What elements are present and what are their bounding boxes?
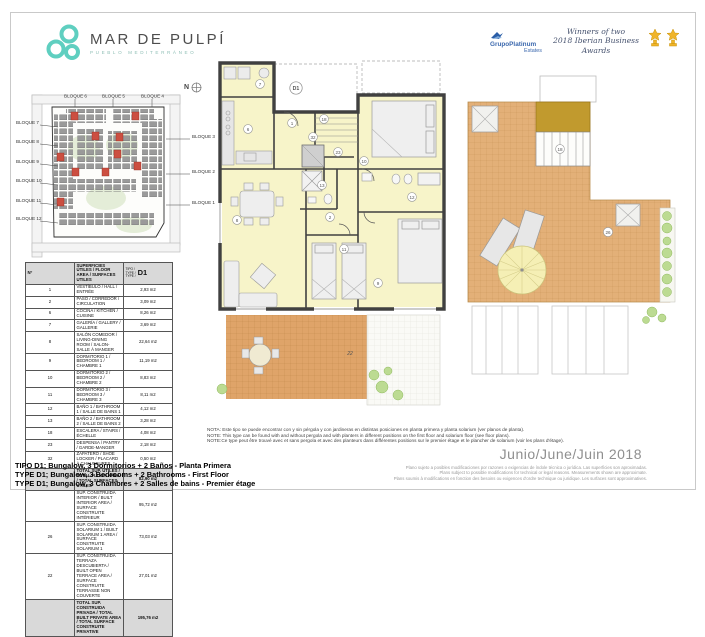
row-description: GALERÍA / GALLERY / GALLERIE — [75, 320, 124, 332]
room-number-dormitorio2: 10 — [361, 159, 367, 164]
north-indicator: N — [184, 82, 202, 93]
room-number-galeria: 7 — [259, 82, 262, 87]
brand-sub: Estates — [490, 48, 542, 54]
row-number: 23 — [26, 440, 75, 452]
disclaimer-fr: Plans soumis à modifications en fonction… — [297, 476, 647, 481]
row-value: 2,18 m2 — [124, 440, 173, 452]
table-row: 11DORMITORIO 3 / BEDROOM 3 / CHAMBRE 38,… — [26, 387, 173, 404]
row-value: 22,64 m2 — [124, 332, 173, 354]
solarium-plan: 26 18 — [456, 70, 694, 435]
notes-block: NOTA: Este tipo se puede encontrar con y… — [207, 427, 652, 444]
row-value: 4,08 m2 — [124, 428, 173, 440]
row-value: 8,11 m2 — [124, 387, 173, 404]
table-row: TOTAL SUP. CONSTRUIDA PRIVADA / TOTAL BU… — [26, 600, 173, 637]
area-table: Nº SUPERFICIES ÚTILES / FLOOR AREA / SUR… — [25, 262, 173, 637]
row-value: 8,26 m2 — [124, 308, 173, 320]
room-number-zapatero: 32 — [310, 135, 316, 140]
row-number: 2 — [26, 296, 75, 308]
type-model-label: D1 — [138, 269, 148, 278]
row-description: BAÑO 1 / BATHROOM 1 / SALLE DE BAINS 1 — [75, 404, 124, 416]
awards-line-1: Winners of two — [548, 27, 644, 36]
row-description: BAÑO 2 / BATHROOM 2 / SALLE DE BAINS 2 — [75, 416, 124, 428]
row-description: SUP. CONSTRUIDA SOLARIUM 1 / BUILT SOLAR… — [75, 522, 124, 554]
unit-label: D1 — [293, 86, 300, 92]
row-number — [26, 600, 75, 637]
trophy-icon — [649, 29, 661, 46]
bloque-label: BLOQUE 4 — [141, 94, 164, 99]
plan-date: Junio/June/Juin 2018 — [400, 446, 642, 462]
bloque-label: BLOQUE 7 — [16, 120, 39, 125]
row-number: 22 — [26, 553, 75, 599]
row-value: 3,28 m2 — [124, 416, 173, 428]
table-row: 10DORMITORIO 2 / BEDROOM 2 / CHAMBRE 28,… — [26, 370, 173, 387]
row-description: SUP. CONSTRUIDA TERRAZA DESCUBIERTA / BU… — [75, 553, 124, 599]
row-number: 11 — [26, 387, 75, 404]
row-description: PASO / CORREDOR / CIRCULATION — [75, 296, 124, 308]
grupo-platinum-logo: GrupoPlatinum Estates — [490, 29, 542, 54]
row-number: 10 — [26, 370, 75, 387]
row-number: 13 — [26, 416, 75, 428]
table-row: 7GALERÍA / GALLERY / GALLERIE3,69 m2 — [26, 320, 173, 332]
row-value: 3,09 m2 — [124, 296, 173, 308]
room-number-terraza: 22 — [346, 351, 353, 357]
row-value: 95,72 m2 — [124, 490, 173, 522]
bloque-label: BLOQUE 6 — [64, 94, 87, 99]
table-header-row: Nº SUPERFICIES ÚTILES / FLOOR AREA / SUR… — [26, 263, 173, 285]
first-floor-plan: D1 1 2 6 7 8 9 10 11 12 13 18 23 32 22 — [212, 57, 462, 430]
row-value: 3,69 m2 — [124, 320, 173, 332]
room-number-cocina: 6 — [247, 127, 250, 132]
table-row: 23DESPENSA / PANTRY / GARDE-MANGER2,18 m… — [26, 440, 173, 452]
trophies — [647, 28, 681, 53]
awards-line-2: 2018 Iberian Business Awards — [548, 36, 644, 55]
row-value: 11,19 m2 — [124, 354, 173, 371]
row-number: 26 — [26, 522, 75, 554]
logo-subtitle: PUEBLO MEDITERRÁNEO — [90, 50, 226, 55]
mar-de-pulpi-logo-icon — [46, 24, 82, 60]
row-description: DESPENSA / PANTRY / GARDE-MANGER — [75, 440, 124, 452]
row-number: 1 — [26, 284, 75, 296]
awards-script: Winners of two 2018 Iberian Business Awa… — [548, 27, 644, 55]
room-number-bano2: 13 — [319, 183, 325, 188]
row-value: 27,01 m2 — [124, 553, 173, 599]
row-value: 2,93 m2 — [124, 284, 173, 296]
row-value: 195,76 m2 — [124, 600, 173, 637]
bloque-label: BLOQUE 8 — [16, 139, 39, 144]
row-value: 8,83 m2 — [124, 370, 173, 387]
type-description: TIPO D1; Bungalow, 3 Dormitorios + 2 Bañ… — [15, 461, 295, 488]
room-number-dormitorio3: 11 — [342, 247, 347, 252]
row-description: DORMITORIO 1 / BEDROOM 1 / CHAMBRE 1 — [75, 354, 124, 371]
room-number-salon: 8 — [236, 218, 239, 223]
bloque-label: BLOQUE 5 — [102, 94, 125, 99]
column-header-type: TIPO / TYPE / TYPE /D1 — [124, 263, 173, 285]
table-row: 2PASO / CORREDOR / CIRCULATION3,09 m2 — [26, 296, 173, 308]
table-row: 22SUP. CONSTRUIDA TERRAZA DESCUBIERTA / … — [26, 553, 173, 599]
row-value: 73,03 m2 — [124, 522, 173, 554]
room-number-solarium: 26 — [605, 230, 611, 235]
room-number-paso: 2 — [329, 215, 332, 220]
row-description: TOTAL SUP. CONSTRUIDA PRIVADA / TOTAL BU… — [75, 600, 124, 637]
north-label: N — [184, 84, 189, 91]
row-number: 18 — [26, 428, 75, 440]
room-number-vestibulo: 1 — [291, 121, 294, 126]
trophy-icon — [667, 29, 679, 46]
room-number-dormitorio1: 9 — [377, 281, 380, 286]
table-row: 1VESTÍBULO / HALL / ENTRÉE2,93 m2 — [26, 284, 173, 296]
row-description: SALÓN COMEDOR / LIVING-DINING ROOM / SAL… — [75, 332, 124, 354]
row-number: 9 — [26, 354, 75, 371]
row-description: DORMITORIO 2 / BEDROOM 2 / CHAMBRE 2 — [75, 370, 124, 387]
column-header-number: Nº — [26, 263, 75, 285]
row-description: VESTÍBULO / HALL / ENTRÉE — [75, 284, 124, 296]
bloque-label: BLOQUE 9 — [16, 159, 39, 164]
plan-sheet: MAR DE PULPÍ PUEBLO MEDITERRÁNEO GrupoPl… — [0, 0, 705, 499]
compass-icon — [191, 82, 202, 93]
logo-text: MAR DE PULPÍ PUEBLO MEDITERRÁNEO — [90, 31, 226, 55]
bloque-label: BLOQUE 10 — [16, 178, 42, 183]
grupo-platinum-icon — [490, 29, 504, 41]
table-row: SUP. CONSTRUIDA INTERIOR / BUILT INTERIO… — [26, 490, 173, 522]
disclaimers-block: Plano sujeto a posibles modificaciones p… — [297, 465, 647, 481]
row-number: 7 — [26, 320, 75, 332]
type-line-fr: TYPE D1; Bungalow, 3 Chambres + 2 Salles… — [15, 479, 295, 488]
row-number: 8 — [26, 332, 75, 354]
table-row: 13BAÑO 2 / BATHROOM 2 / SALLE DE BAINS 2… — [26, 416, 173, 428]
table-row: 12BAÑO 1 / BATHROOM 1 / SALLE DE BAINS 1… — [26, 404, 173, 416]
row-number — [26, 490, 75, 522]
row-description: COCINA / KITCHEN / CUISINE — [75, 308, 124, 320]
table-row: 8SALÓN COMEDOR / LIVING-DINING ROOM / SA… — [26, 332, 173, 354]
row-number: 6 — [26, 308, 75, 320]
type-line-en: TYPE D1; Bungalow, 3 Bedrooms + 2 Bathro… — [15, 470, 295, 479]
row-number: 12 — [26, 404, 75, 416]
type-stack-label: TIPO / TYPE / TYPE / — [126, 268, 136, 278]
row-value: 4,12 m2 — [124, 404, 173, 416]
table-row: 9DORMITORIO 1 / BEDROOM 1 / CHAMBRE 111,… — [26, 354, 173, 371]
table-row: 6COCINA / KITCHEN / CUISINE8,26 m2 — [26, 308, 173, 320]
type-line-es: TIPO D1; Bungalow, 3 Dormitorios + 2 Bañ… — [15, 461, 295, 470]
column-header-description: SUPERFICIES ÚTILES / FLOOR AREA / SURFAC… — [75, 263, 124, 285]
room-number-solarium-stairs: 18 — [557, 147, 563, 152]
row-description: ESCALERA / STAIRS / ÉCHELLE — [75, 428, 124, 440]
bloque-label: BLOQUE 12 — [16, 216, 42, 221]
bloque-label: BLOQUE 11 — [16, 198, 42, 203]
room-number-bano1: 12 — [409, 195, 415, 200]
row-description: SUP. CONSTRUIDA INTERIOR / BUILT INTERIO… — [75, 490, 124, 522]
logo-title: MAR DE PULPÍ — [90, 31, 226, 48]
site-key-plan: BLOQUE 6 BLOQUE 5 BLOQUE 4 BLOQUE 7 BLOQ… — [14, 93, 216, 270]
table-row: 26SUP. CONSTRUIDA SOLARIUM 1 / BUILT SOL… — [26, 522, 173, 554]
room-number-despensa: 23 — [335, 150, 341, 155]
note-fr: NOTE:Ce type peut être trouvé avec et sa… — [207, 438, 652, 444]
room-number-escalera: 18 — [321, 117, 327, 122]
row-description: DORMITORIO 3 / BEDROOM 3 / CHAMBRE 3 — [75, 387, 124, 404]
table-row: 18ESCALERA / STAIRS / ÉCHELLE4,08 m2 — [26, 428, 173, 440]
